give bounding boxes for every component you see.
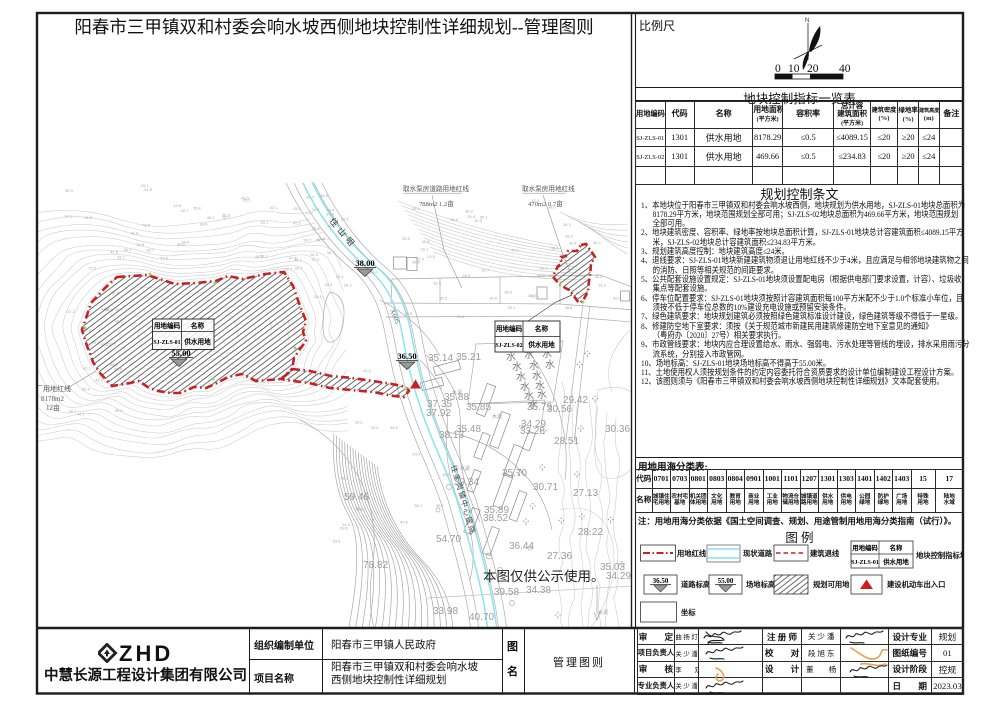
svg-text:40.8: 40.8 — [595, 274, 604, 279]
svg-text:38.6: 38.6 — [551, 245, 560, 250]
svg-text:34.6: 34.6 — [489, 295, 498, 300]
svg-text:40.5: 40.5 — [400, 519, 409, 524]
svg-text:20: 20 — [807, 63, 819, 75]
svg-text:35.14: 35.14 — [428, 353, 453, 364]
svg-text:40: 40 — [839, 63, 851, 75]
svg-text:30.4: 30.4 — [312, 226, 321, 231]
svg-text:43.5: 43.5 — [293, 206, 302, 211]
svg-text:42.7: 42.7 — [181, 208, 190, 213]
svg-text:44.4: 44.4 — [181, 239, 190, 244]
svg-text:0: 0 — [775, 63, 781, 75]
svg-text:40.1: 40.1 — [511, 248, 520, 253]
svg-text:55.00: 55.00 — [718, 577, 734, 585]
svg-text:28.1: 28.1 — [314, 294, 323, 299]
svg-text:36.8: 36.8 — [341, 475, 350, 480]
svg-text:33.9: 33.9 — [333, 539, 342, 544]
svg-text:35.9: 35.9 — [325, 282, 334, 287]
svg-text:30.8: 30.8 — [457, 314, 466, 319]
svg-text:35.85: 35.85 — [466, 402, 491, 413]
svg-text:33.1: 33.1 — [260, 219, 269, 224]
svg-text:30.71: 30.71 — [533, 482, 558, 493]
svg-text:788m2 1.2亩: 788m2 1.2亩 — [419, 199, 454, 208]
svg-text:30.8: 30.8 — [569, 241, 578, 246]
svg-text:27.13: 27.13 — [573, 488, 598, 499]
svg-text:42.6: 42.6 — [143, 223, 152, 228]
svg-text:38.13: 38.13 — [439, 430, 464, 441]
svg-text:地块控制指标块: 地块控制指标块 — [916, 551, 963, 560]
svg-text:34.6: 34.6 — [412, 260, 421, 265]
svg-text:坐标: 坐标 — [681, 608, 696, 617]
svg-text:33.7: 33.7 — [117, 254, 126, 259]
svg-text:阳春市三甲镇双和村委会响水坡西侧地块控制性详细规划--管理图: 阳春市三甲镇双和村委会响水坡西侧地块控制性详细规划--管理图则 — [74, 17, 593, 37]
svg-text:水: 水 — [545, 359, 555, 371]
svg-text:场地标高: 场地标高 — [746, 580, 775, 589]
svg-text:34.29: 34.29 — [606, 571, 631, 582]
svg-text:用地编码: 用地编码 — [154, 321, 181, 330]
svg-text:8178m2: 8178m2 — [41, 395, 64, 403]
svg-text:水泥: 水泥 — [460, 465, 470, 472]
svg-text:28.3: 28.3 — [336, 274, 345, 279]
svg-text:取水泵房道路用地红线: 取水泵房道路用地红线 — [403, 184, 469, 193]
svg-text:35.21: 35.21 — [456, 352, 481, 363]
svg-text:42.7: 42.7 — [146, 248, 155, 253]
svg-text:31.9: 31.9 — [131, 231, 140, 236]
svg-text:35.4: 35.4 — [193, 205, 202, 210]
svg-text:道路标高: 道路标高 — [681, 580, 710, 589]
svg-text:SJ-ZLS-01: SJ-ZLS-01 — [851, 560, 879, 566]
svg-text:34.6: 34.6 — [200, 221, 209, 226]
svg-text:470m2 0.7亩: 470m2 0.7亩 — [528, 199, 563, 208]
svg-text:36.9: 36.9 — [504, 289, 513, 294]
svg-text:35.6: 35.6 — [326, 212, 335, 217]
svg-text:42.1: 42.1 — [270, 205, 279, 210]
svg-text:厂用地红线: 厂用地红线 — [36, 384, 71, 393]
svg-text:SJ-ZLS-01: SJ-ZLS-01 — [153, 340, 180, 346]
svg-text:41.5: 41.5 — [144, 187, 153, 192]
svg-text:36.9: 36.9 — [528, 293, 537, 298]
svg-text:40.3: 40.3 — [422, 239, 431, 244]
svg-text:44.1: 44.1 — [77, 412, 86, 417]
svg-text:41.9: 41.9 — [84, 215, 93, 220]
svg-text:34.1: 34.1 — [64, 213, 73, 218]
svg-text:水泥: 水泥 — [492, 413, 502, 420]
svg-text:37.2: 37.2 — [88, 266, 97, 271]
svg-text:39.7: 39.7 — [303, 238, 312, 243]
svg-text:规划可用地: 规划可用地 — [812, 580, 850, 589]
svg-text:32.5: 32.5 — [341, 217, 350, 222]
svg-text:取水泵房用地红线: 取水泵房用地红线 — [522, 184, 575, 193]
svg-text:44.4: 44.4 — [306, 194, 315, 199]
svg-text:30.36: 30.36 — [605, 424, 630, 435]
svg-text:38.1: 38.1 — [414, 503, 423, 508]
svg-text:43.0: 43.0 — [160, 256, 169, 261]
svg-text:45.8: 45.8 — [317, 236, 326, 241]
svg-text:47.2: 47.2 — [67, 309, 76, 314]
svg-text:48.5: 48.5 — [320, 193, 329, 198]
svg-text:名称: 名称 — [535, 324, 549, 333]
svg-text:名称: 名称 — [890, 543, 903, 552]
svg-text:45.5: 45.5 — [293, 220, 302, 225]
svg-text:供水用地: 供水用地 — [527, 340, 555, 349]
svg-text:34.4: 34.4 — [412, 451, 421, 456]
svg-text:本图仅供公示使用。: 本图仅供公示使用。 — [483, 568, 605, 584]
svg-text:28.51: 28.51 — [554, 436, 579, 447]
svg-text:28.3: 28.3 — [344, 283, 353, 288]
svg-text:43.2: 43.2 — [305, 210, 314, 215]
svg-text:35.7: 35.7 — [355, 506, 364, 511]
svg-text:37.92: 37.92 — [426, 408, 451, 419]
svg-text:34.1: 34.1 — [124, 247, 133, 252]
svg-text:用地红线: 用地红线 — [676, 549, 707, 558]
svg-text:35.3: 35.3 — [563, 222, 572, 227]
svg-text:28.9: 28.9 — [537, 273, 546, 278]
svg-text:39.5: 39.5 — [442, 472, 451, 477]
svg-text:28.0: 28.0 — [462, 273, 471, 278]
svg-text:建设机动车出入口: 建设机动车出入口 — [886, 580, 945, 589]
svg-text:建筑退线: 建筑退线 — [809, 549, 840, 558]
svg-text:39.3: 39.3 — [355, 420, 364, 425]
svg-text:39.5: 39.5 — [540, 266, 549, 271]
svg-text:39.3: 39.3 — [65, 188, 74, 193]
svg-text:59.46: 59.46 — [344, 492, 369, 503]
svg-text:55.00: 55.00 — [171, 348, 190, 358]
svg-text:供水用地: 供水用地 — [183, 337, 211, 346]
svg-text:43.1: 43.1 — [95, 378, 104, 383]
svg-text:30.9: 30.9 — [474, 218, 483, 223]
svg-text:36.3: 36.3 — [465, 208, 474, 213]
svg-text:32.7: 32.7 — [295, 265, 304, 270]
svg-text:32.9: 32.9 — [598, 283, 607, 288]
svg-text:29.1: 29.1 — [508, 305, 517, 310]
svg-text:38.8: 38.8 — [565, 305, 574, 310]
svg-text:32.0: 32.0 — [613, 296, 622, 301]
svg-text:30.6: 30.6 — [136, 242, 145, 247]
svg-text:33.2: 33.2 — [371, 425, 380, 430]
svg-text:水: 水 — [537, 389, 547, 401]
svg-text:39.34: 39.34 — [454, 477, 479, 488]
svg-text:37.9: 37.9 — [312, 257, 321, 262]
svg-text:12亩: 12亩 — [46, 403, 60, 412]
svg-text:用地编码: 用地编码 — [496, 324, 523, 333]
svg-text:40.70: 40.70 — [469, 612, 494, 623]
svg-text:38.52: 38.52 — [483, 513, 508, 524]
svg-text:36.3: 36.3 — [439, 296, 448, 301]
svg-text:32.5: 32.5 — [433, 280, 442, 285]
svg-text:N: N — [805, 18, 809, 24]
svg-text:37.7: 37.7 — [285, 266, 294, 271]
svg-text:36.5: 36.5 — [404, 311, 413, 316]
svg-text:32.7: 32.7 — [481, 268, 490, 273]
svg-text:41.1: 41.1 — [83, 365, 92, 370]
svg-text:44.5: 44.5 — [241, 196, 250, 201]
svg-text:40.4: 40.4 — [593, 240, 602, 245]
svg-text:36.9: 36.9 — [222, 212, 231, 217]
svg-text:39.3: 39.3 — [260, 254, 269, 259]
svg-text:54.70: 54.70 — [436, 534, 461, 545]
svg-text:33.4: 33.4 — [565, 234, 574, 239]
svg-text:40.2: 40.2 — [434, 385, 443, 390]
svg-text:36.50: 36.50 — [397, 351, 416, 361]
svg-text:46.2: 46.2 — [207, 215, 216, 220]
svg-text:47.6: 47.6 — [289, 255, 298, 260]
svg-text:30.4: 30.4 — [82, 387, 91, 392]
svg-text:38.0: 38.0 — [450, 217, 459, 222]
svg-text:现状道路: 现状道路 — [743, 549, 773, 558]
svg-text:35.9: 35.9 — [436, 503, 445, 508]
svg-text:78.82: 78.82 — [363, 560, 388, 571]
svg-text:34.7: 34.7 — [327, 250, 336, 255]
svg-text:36.50: 36.50 — [653, 577, 669, 585]
svg-text:27.36: 27.36 — [547, 551, 572, 562]
svg-text:28.22: 28.22 — [578, 527, 603, 538]
svg-text:33.98: 33.98 — [433, 606, 458, 617]
svg-text:39.5: 39.5 — [115, 408, 124, 413]
svg-text:41.8: 41.8 — [110, 250, 119, 255]
svg-text:38.00: 38.00 — [355, 258, 374, 268]
svg-text:31.2: 31.2 — [363, 368, 372, 373]
svg-text:30.9: 30.9 — [402, 236, 411, 241]
svg-text:35.70: 35.70 — [502, 468, 527, 479]
svg-text:用地编码: 用地编码 — [852, 543, 878, 552]
svg-text:29.1: 29.1 — [420, 247, 429, 252]
svg-text:30.56: 30.56 — [547, 404, 572, 415]
svg-text:29.5: 29.5 — [427, 254, 436, 259]
svg-text:33.28: 33.28 — [520, 426, 545, 437]
svg-text:36.44: 36.44 — [509, 541, 534, 552]
svg-text:39.58: 39.58 — [494, 587, 519, 598]
svg-text:31.6: 31.6 — [342, 522, 351, 527]
svg-text:供水用地: 供水用地 — [882, 557, 909, 566]
svg-text:10: 10 — [788, 63, 800, 75]
svg-text:SJ-ZLS-02: SJ-ZLS-02 — [495, 343, 522, 349]
svg-text:34.38: 34.38 — [526, 585, 551, 596]
svg-text:32.9: 32.9 — [310, 252, 319, 257]
svg-text:名称: 名称 — [191, 321, 205, 330]
svg-text:38.6: 38.6 — [390, 425, 399, 430]
svg-text:水泥: 水泥 — [598, 609, 608, 616]
